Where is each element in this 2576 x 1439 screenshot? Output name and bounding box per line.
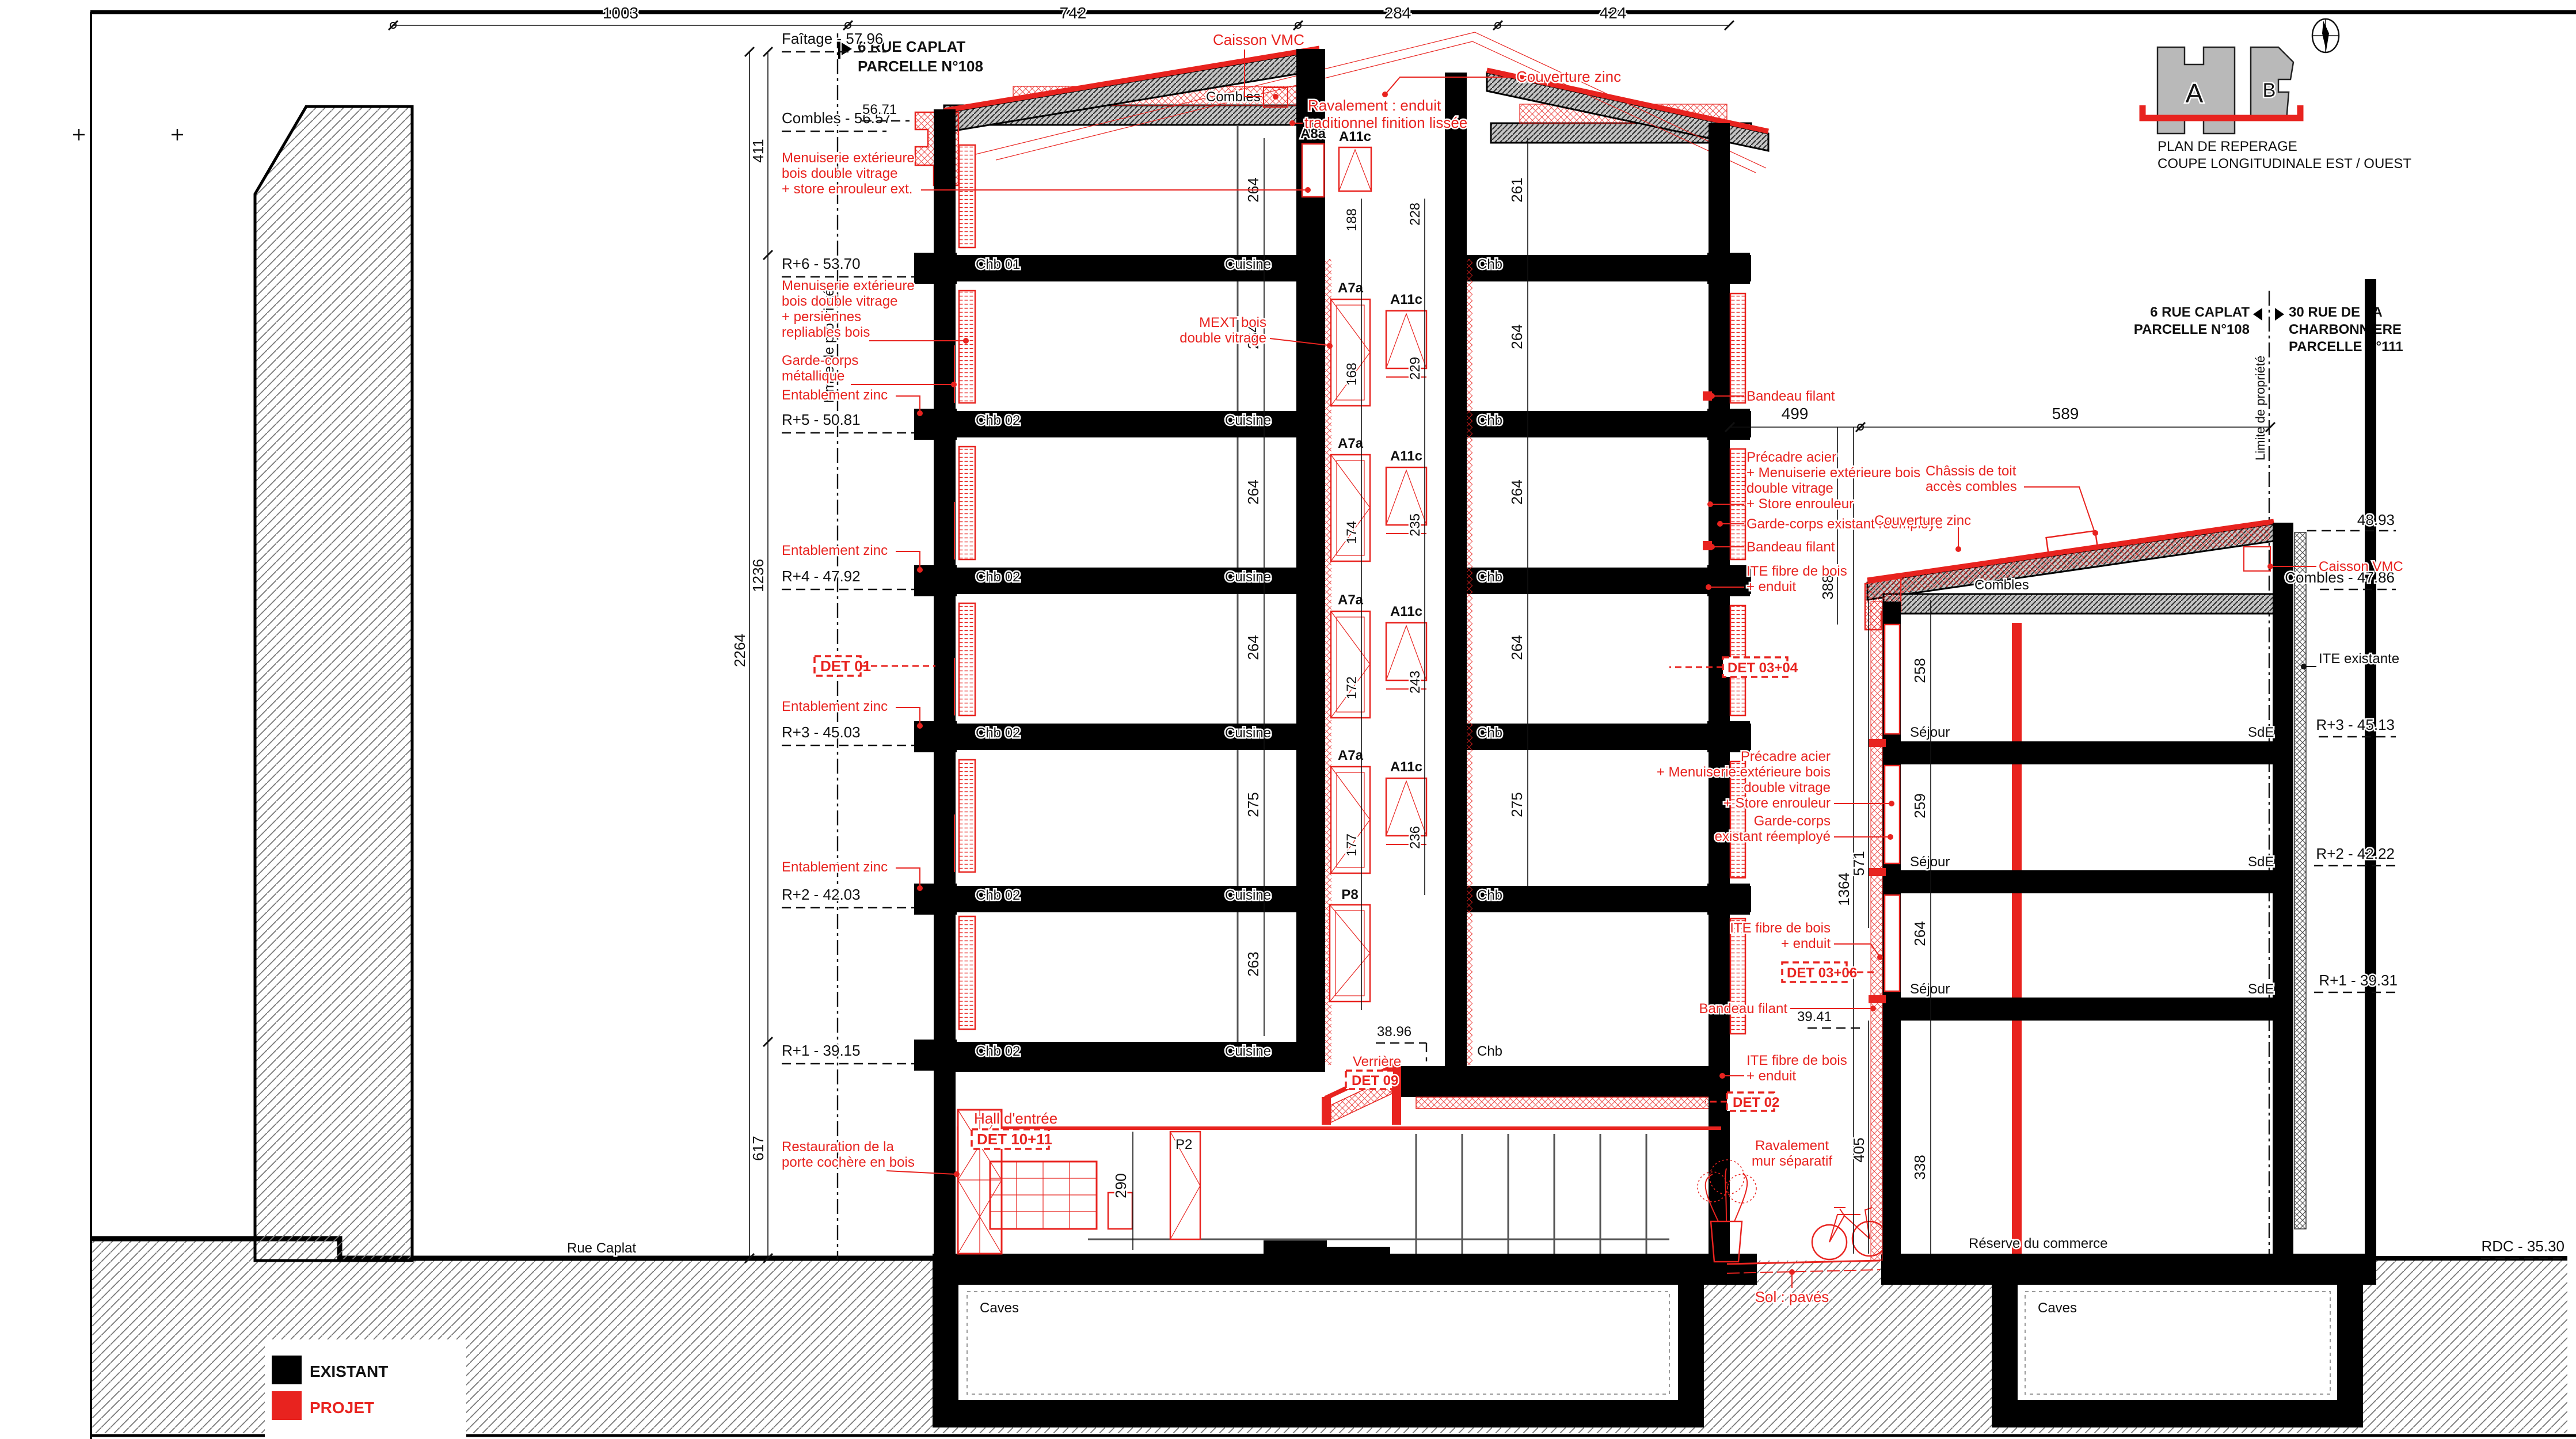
key-plan: A B PLAN DE REPERAGE COUPE LONGITUDINALE… <box>2143 18 2411 172</box>
property-limit-right: 6 RUE CAPLAT PARCELLE N°108 30 RUE DE LA… <box>2134 291 2403 1259</box>
room-chb02-1: Chb 02 <box>976 413 1020 428</box>
dim-a-rdc: 290 <box>1112 1173 1129 1198</box>
dim-a-right-3: 264 <box>1508 635 1525 660</box>
ann-caisson-b: Caisson VMC <box>2319 559 2403 574</box>
dim-a-left-3: 264 <box>1245 635 1262 660</box>
dim-b-258: 258 <box>1911 658 1928 683</box>
room-chb02-5: Chb 02 <box>976 1044 1020 1059</box>
left-dimension-chain: 411 1236 2264 617 <box>73 47 773 1263</box>
ann-couv-a: Couverture zinc <box>1516 68 1621 85</box>
room-caves-b: Caves <box>2038 1300 2077 1316</box>
dim-shaft-l2: 172 <box>1344 676 1360 699</box>
ann-pre2-3: double vitrage <box>1744 780 1831 795</box>
win-a11c-4: A11c <box>1390 759 1422 775</box>
ann-rav-1: Ravalement : enduit <box>1308 97 1441 114</box>
room-chb02-2: Chb 02 <box>976 569 1020 585</box>
ite-existante: ITE existante <box>2319 651 2399 667</box>
win-p2: P2 <box>1175 1137 1192 1152</box>
ann-rav-2: traditionnel finition lissée <box>1304 114 1467 131</box>
left-dim-2264: 2264 <box>731 634 748 667</box>
room-reserve: Réserve du commerce <box>1969 1236 2107 1251</box>
ann-caisson-a: Caisson VMC <box>1213 31 1304 48</box>
ann-bandeau-3: Bandeau filant <box>1699 1001 1788 1017</box>
key-plan-caption-1: PLAN DE REPERAGE <box>2158 139 2297 154</box>
ann-men1-l3: + store enrouleur ext. <box>782 181 912 197</box>
storefront-rdc: P2 Hall d'entrée DET 10+11 <box>957 1110 1721 1257</box>
ann-ite2-1: ITE fibre de bois <box>1730 920 1831 936</box>
ann-ite2-2: + enduit <box>1781 936 1831 951</box>
ann-pre1-4: + Store enrouleur <box>1746 496 1854 512</box>
ann-det0306: DET 03+06 <box>1787 965 1857 981</box>
dim-shaft-r2: 243 <box>1407 671 1423 694</box>
room-sde-1: SdE <box>2248 725 2274 740</box>
ann-bandeau-2: Bandeau filant <box>1746 539 1835 555</box>
ann-chassis-2: accès combles <box>1926 479 2017 494</box>
ann-ite3-2: + enduit <box>1746 1068 1796 1084</box>
building-a: Caves Combles <box>914 32 1768 1427</box>
win-a11c-top: A11c <box>1339 129 1371 144</box>
dim-b-259: 259 <box>1911 793 1928 818</box>
ann-men2-l1: Menuiserie extérieure <box>782 278 915 294</box>
ann-men1-l1: Menuiserie extérieure <box>782 150 915 166</box>
room-sde-2: SdE <box>2248 854 2274 870</box>
key-plan-label-a: A <box>2186 78 2204 108</box>
room-chb-r1: Chb <box>1477 257 1502 272</box>
room-chb01: Chb 01 <box>976 257 1020 272</box>
ann-pre1-3: double vitrage <box>1746 481 1833 496</box>
parcel-left-number: PARCELLE N°108 <box>858 58 983 75</box>
ann-rest-l2: porte cochère en bois <box>782 1155 915 1170</box>
dim-b-589: 589 <box>2052 405 2079 422</box>
top-dim-4: 424 <box>1600 4 1627 22</box>
dim-a-left-4: 275 <box>1245 792 1262 817</box>
room-combles-b: Combles <box>1974 577 2029 593</box>
vmc-box-b <box>2244 547 2270 571</box>
parcel-right-number: PARCELLE N°111 <box>2289 339 2403 355</box>
room-chb02-4: Chb 02 <box>976 888 1020 903</box>
win-a7a-3: A7a <box>1338 592 1364 608</box>
ann-ite3-1: ITE fibre de bois <box>1746 1053 1847 1068</box>
ann-entablement-4: Entablement zinc <box>782 859 888 875</box>
win-a7a-2: A7a <box>1338 436 1364 451</box>
ann-entablement-1: Entablement zinc <box>782 387 888 403</box>
ann-pre2-2: + Menuiserie extérieure bois <box>1657 764 1831 780</box>
ann-chassis-1: Châssis de toit <box>1926 463 2016 479</box>
dim-a-right-1: 264 <box>1508 324 1525 349</box>
level-b-r2: R+2 - 42.22 <box>2316 845 2395 862</box>
legend-existing-label: EXISTANT <box>310 1362 388 1380</box>
parcel-left-number-2: PARCELLE N°108 <box>2134 322 2250 337</box>
room-chb-r6: Chb <box>1477 1044 1502 1059</box>
ann-ite1-1: ITE fibre de bois <box>1746 564 1847 579</box>
level-r6: R+6 - 53.70 <box>782 255 861 272</box>
ann-men2-l4: repliables bois <box>782 325 870 340</box>
section-drawing: Rue Caplat 6 RUE CAPLAT PARCELLE N°108 L… <box>0 0 2576 1439</box>
ann-couv-b: Couverture zinc <box>1874 513 1971 528</box>
win-a11c-1: A11c <box>1390 292 1422 307</box>
dim-shaft-r0: 229 <box>1407 357 1423 380</box>
ann-ravsep-1: Ravalement <box>1755 1138 1829 1154</box>
street-name: Rue Caplat <box>567 1240 636 1256</box>
level-r2: R+2 - 42.03 <box>782 886 861 903</box>
level-b-r3: R+3 - 45.13 <box>2316 716 2395 733</box>
room-chb-r5: Chb <box>1477 888 1502 903</box>
hall-label: Hall d'entrée <box>974 1110 1057 1127</box>
sheet-frame <box>90 12 2576 1439</box>
win-a11c-2: A11c <box>1390 448 1422 464</box>
dim-b-405: 405 <box>1850 1137 1867 1162</box>
north-compass-icon <box>2312 18 2339 53</box>
dim-b-1364: 1364 <box>1835 873 1852 906</box>
legend: EXISTANT PROJET <box>265 1339 466 1437</box>
room-chb02-3: Chb 02 <box>976 725 1020 741</box>
room-cuisine-6: Cuisine <box>1225 1044 1271 1059</box>
level-3941: 39.41 <box>1797 1009 1832 1025</box>
room-sejour-3: Séjour <box>1910 981 1950 997</box>
top-dim-3: 284 <box>1384 4 1411 22</box>
annotations-left: Menuiserie extérieure bois double vitrag… <box>782 150 1311 1177</box>
room-sde-3: SdE <box>2248 981 2274 997</box>
ann-pre2-1: Précadre acier <box>1741 749 1831 764</box>
legend-swatch-existing <box>272 1356 302 1384</box>
ann-gc-l2: métallique <box>782 368 844 384</box>
dim-shaft-l0: 168 <box>1344 363 1360 386</box>
room-sejour-2: Séjour <box>1910 854 1950 870</box>
dim-a-right-0: 261 <box>1508 177 1525 202</box>
ann-entablement-3: Entablement zinc <box>782 699 888 714</box>
room-chb-r2: Chb <box>1477 413 1502 428</box>
ann-men1-l2: bois double vitrage <box>782 166 897 181</box>
ann-gc2-2: existant réemployé <box>1715 829 1831 844</box>
ann-gc2-1: Garde-corps <box>1754 813 1831 829</box>
top-dimension-chain: 1003 742 284 424 <box>389 4 1734 30</box>
dim-a-right-2: 264 <box>1508 479 1525 504</box>
ann-mext-1: MEXT bois <box>1199 315 1266 330</box>
parcel-left-street-2: 6 RUE CAPLAT <box>2150 304 2250 320</box>
ann-pre1-1: Précadre acier <box>1746 450 1836 465</box>
ann-ravsep-2: mur séparatif <box>1752 1154 1832 1169</box>
level-b-rdc: RDC - 35.30 <box>2482 1238 2565 1255</box>
parcel-right-street-2: CHARBONNIERE <box>2289 322 2402 337</box>
dim-shaft-l1: 174 <box>1344 521 1360 544</box>
ann-det02: DET 02 <box>1733 1095 1779 1110</box>
dim-b-264: 264 <box>1911 921 1928 946</box>
left-dim-617: 617 <box>749 1136 767 1160</box>
architectural-section-sheet: Rue Caplat 6 RUE CAPLAT PARCELLE N°108 L… <box>0 0 2576 1439</box>
level-r1: R+1 - 39.15 <box>782 1042 861 1059</box>
room-chb-r4: Chb <box>1477 725 1502 741</box>
left-dim-411: 411 <box>749 139 767 162</box>
win-a7a-1: A7a <box>1338 280 1364 296</box>
dim-a-right-4: 275 <box>1508 792 1525 817</box>
ann-bandeau-1: Bandeau filant <box>1746 389 1835 404</box>
legend-swatch-project <box>272 1391 302 1420</box>
key-plan-caption-2: COUPE LONGITUDINALE EST / OUEST <box>2158 156 2411 172</box>
room-sejour-1: Séjour <box>1910 725 1950 740</box>
ann-det09: DET 09 <box>1352 1073 1398 1088</box>
dim-b-571: 571 <box>1850 851 1867 875</box>
dim-a-left-2: 264 <box>1245 479 1262 504</box>
ann-mext-2: double vitrage <box>1179 330 1266 346</box>
ann-verriere: Verrière <box>1353 1054 1401 1069</box>
dim-a-left-5: 263 <box>1245 951 1262 976</box>
dim-b-338: 338 <box>1911 1155 1928 1179</box>
top-dim-1: 1003 <box>603 4 638 22</box>
dim-shaft-188: 188 <box>1344 208 1360 231</box>
level-r5: R+5 - 50.81 <box>782 411 861 428</box>
ann-det0304: DET 03+04 <box>1728 660 1798 676</box>
left-dim-1236: 1236 <box>749 559 767 592</box>
limit-label-right: Limite de propriété <box>2253 356 2267 460</box>
win-p8: P8 <box>1341 887 1358 903</box>
ann-rest-l1: Restauration de la <box>782 1139 894 1155</box>
ann-men2-l3: + persiennes <box>782 309 861 325</box>
level-5671: 56.71 <box>862 102 897 117</box>
ann-pre2-4: + Store enrouleur <box>1723 795 1831 811</box>
level-faitage: Faîtage - 57.96 <box>782 30 883 47</box>
dim-shaft-l3: 177 <box>1344 833 1360 856</box>
win-a7a-4: A7a <box>1338 748 1364 763</box>
legend-project-label: PROJET <box>310 1399 374 1417</box>
sol-paves: Sol : pavés <box>1755 1288 1829 1305</box>
level-3896: 38.96 <box>1377 1024 1411 1040</box>
key-plan-label-b: B <box>2263 79 2276 101</box>
level-r3: R+3 - 45.03 <box>782 724 861 741</box>
neighbour-building-left <box>255 106 412 1261</box>
ann-ite1-2: + enduit <box>1746 579 1796 595</box>
ann-entablement-2: Entablement zinc <box>782 543 888 558</box>
ann-gc-l1: Garde-corps <box>782 353 858 368</box>
level-r4: R+4 - 47.92 <box>782 568 861 585</box>
level-b-r1: R+1 - 39.31 <box>2319 972 2398 989</box>
dim-shaft-r1: 235 <box>1407 513 1423 536</box>
dim-shaft-228: 228 <box>1407 203 1423 226</box>
dim-shaft-r3: 236 <box>1407 826 1423 849</box>
top-dim-2: 742 <box>1060 4 1087 22</box>
room-caves-a: Caves <box>980 1300 1019 1316</box>
room-chb-r3: Chb <box>1477 569 1502 585</box>
ann-men2-l2: bois double vitrage <box>782 294 897 309</box>
det-10-11: DET 10+11 <box>977 1130 1052 1148</box>
ann-pre1-2: + Menuiserie extérieure bois <box>1746 465 1920 481</box>
level-4893: 48.93 <box>2357 511 2395 528</box>
dim-b-499: 499 <box>1782 405 1809 422</box>
win-a11c-3: A11c <box>1390 604 1422 619</box>
